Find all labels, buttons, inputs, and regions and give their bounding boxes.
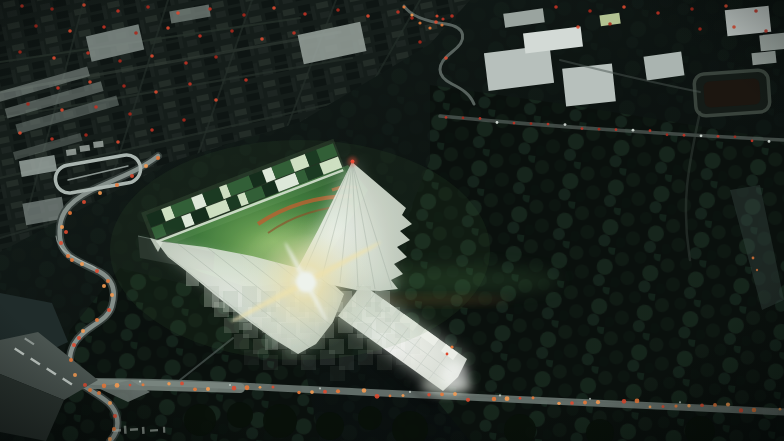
vignette-overlay [0, 0, 784, 441]
aerial-rendering [0, 0, 784, 441]
aerial-rendering-canvas [0, 0, 784, 441]
